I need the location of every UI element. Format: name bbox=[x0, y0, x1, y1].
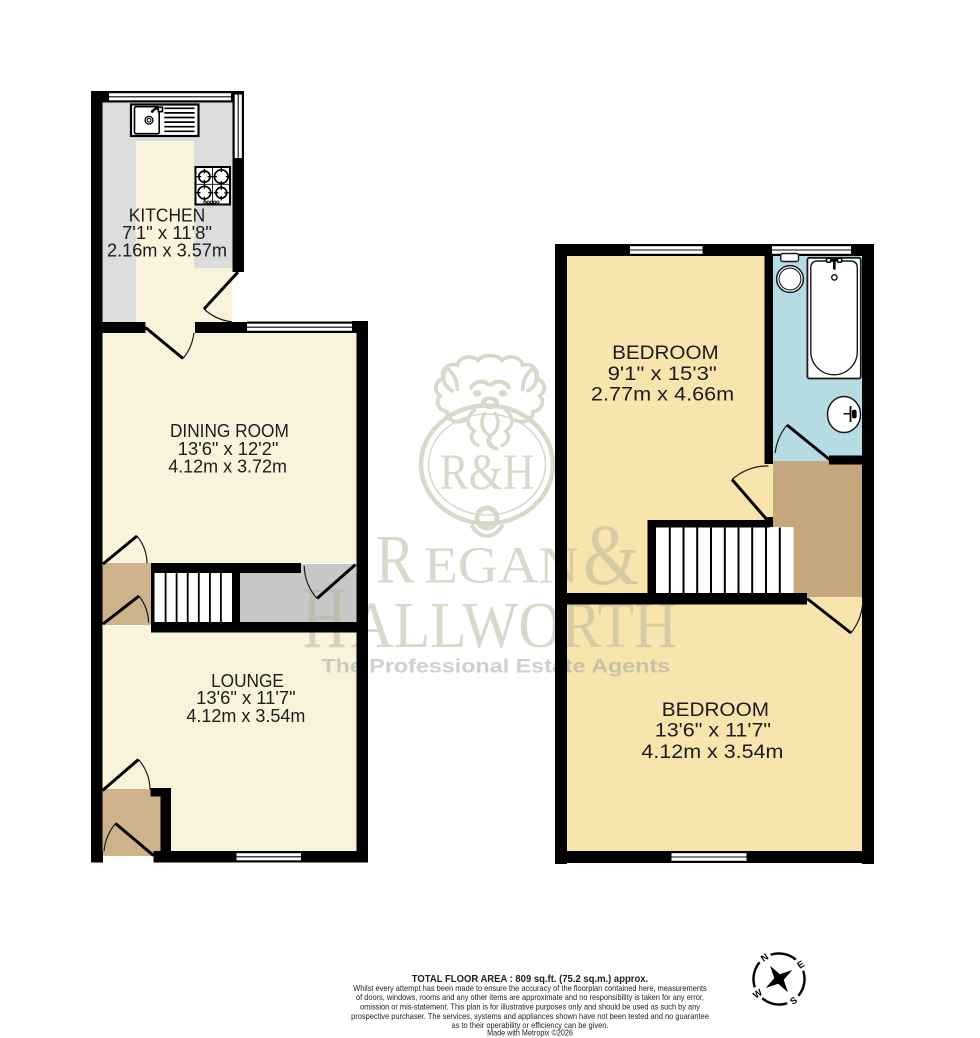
svg-text:The Professional Estate Agents: The Professional Estate Agents bbox=[321, 657, 670, 678]
svg-text:13'6" x 11'7": 13'6" x 11'7" bbox=[655, 720, 771, 742]
svg-text:omission or mis-statement. Thi: omission or mis-statement. This plan is … bbox=[360, 1002, 701, 1011]
svg-text:4.12m x 3.54m: 4.12m x 3.54m bbox=[186, 705, 305, 726]
svg-text:BEDROOM: BEDROOM bbox=[612, 342, 719, 364]
svg-text:2.77m x 4.66m: 2.77m x 4.66m bbox=[591, 383, 734, 405]
svg-text:prospective purchaser. The ser: prospective purchaser. The services, sys… bbox=[351, 1012, 709, 1021]
svg-text:4.12m x 3.54m: 4.12m x 3.54m bbox=[641, 741, 783, 763]
svg-text:H: H bbox=[303, 570, 347, 667]
svg-text:R&H: R&H bbox=[440, 445, 535, 501]
svg-text:2.16m x 3.57m: 2.16m x 3.57m bbox=[107, 241, 227, 261]
svg-text:9'1" x 15'3": 9'1" x 15'3" bbox=[608, 363, 717, 385]
svg-text:Whilst every attempt has been: Whilst every attempt has been made to en… bbox=[353, 984, 707, 993]
svg-text:4.12m x 3.72m: 4.12m x 3.72m bbox=[168, 457, 287, 477]
svg-text:R: R bbox=[376, 522, 415, 599]
svg-text:Made with Metropix ©2026: Made with Metropix ©2026 bbox=[487, 1028, 573, 1037]
svg-text:BEDROOM: BEDROOM bbox=[662, 699, 769, 721]
svg-text:of doors, windows, rooms and a: of doors, windows, rooms and any other i… bbox=[356, 993, 704, 1002]
